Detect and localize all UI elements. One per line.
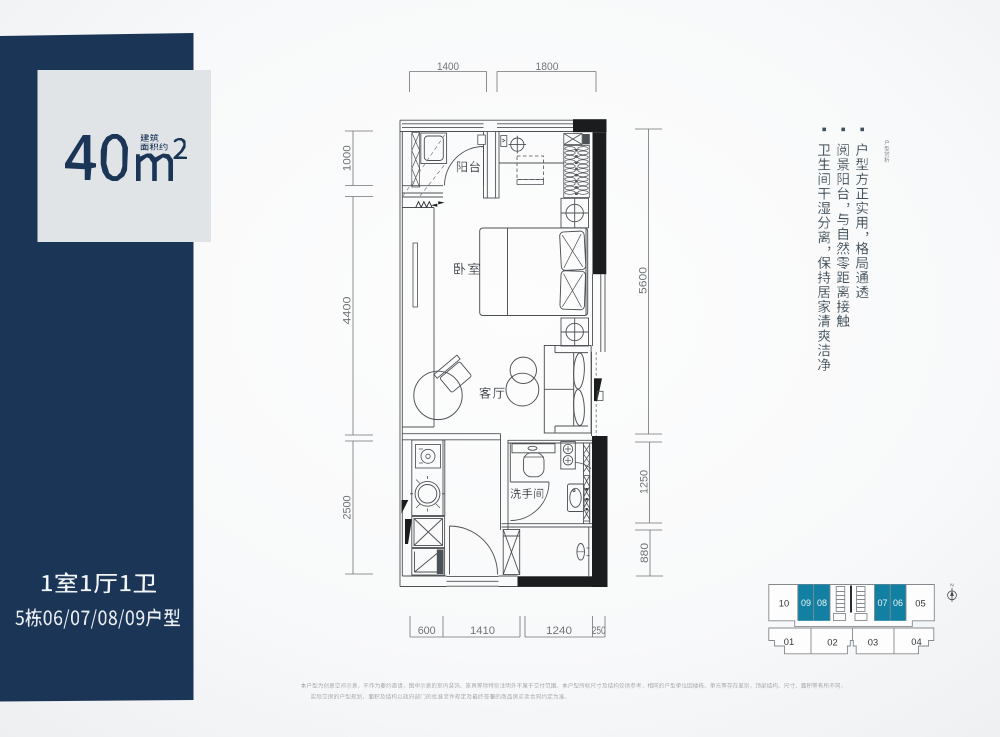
svg-text:250: 250 <box>592 625 606 637</box>
svg-text:05: 05 <box>915 598 925 608</box>
svg-text:600: 600 <box>418 625 436 637</box>
svg-text:03: 03 <box>868 638 878 648</box>
svg-text:1250: 1250 <box>639 470 651 494</box>
svg-text:4400: 4400 <box>342 297 354 325</box>
svg-text:06: 06 <box>893 598 903 608</box>
svg-text:01: 01 <box>784 637 794 647</box>
svg-text:10: 10 <box>779 598 789 608</box>
svg-text:08: 08 <box>817 598 827 608</box>
svg-text:880: 880 <box>639 543 651 563</box>
svg-text:1240: 1240 <box>546 625 572 637</box>
svg-text:N: N <box>950 583 954 589</box>
svg-text:1400: 1400 <box>437 61 459 73</box>
svg-text:5600: 5600 <box>638 267 650 294</box>
svg-text:04: 04 <box>911 637 921 647</box>
svg-text:2500: 2500 <box>342 496 354 520</box>
svg-text:09: 09 <box>801 598 811 608</box>
svg-text:07: 07 <box>878 598 888 608</box>
svg-text:02: 02 <box>827 638 837 648</box>
svg-text:1800: 1800 <box>536 61 559 73</box>
svg-text:1410: 1410 <box>470 625 495 637</box>
svg-text:1000: 1000 <box>342 145 354 171</box>
